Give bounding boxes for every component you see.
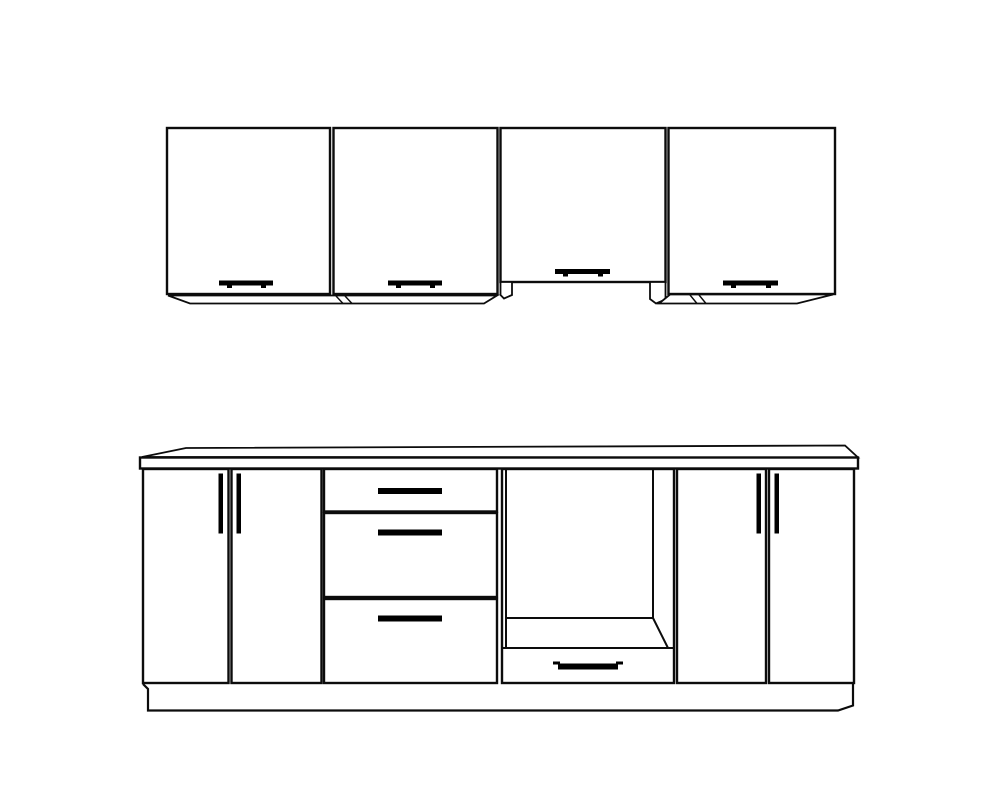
drawer-3 — [324, 599, 497, 683]
base-cabinet-left — [143, 469, 322, 683]
wall-cabinet-1 — [167, 128, 330, 294]
base-cabinet-left-door-2 — [232, 469, 322, 683]
wall-cabinet-3 — [501, 128, 666, 304]
wall-cabinet-2-handle-foot-right — [430, 286, 435, 289]
oven-housing — [502, 469, 674, 683]
wall-cabinet-1-handle-foot-left — [227, 286, 232, 289]
plinth-kickboard — [143, 684, 853, 711]
base-cabinet-left-handle-2 — [237, 474, 242, 534]
wall-cabinet-2-handle-foot-left — [396, 286, 401, 289]
wall-cabinet-underside-right — [659, 295, 833, 304]
wall-cabinet-3-handle-foot-left — [563, 274, 568, 277]
wall-cabinet-3-recess-foot-left — [501, 282, 513, 299]
drawer-2-handle — [378, 530, 442, 536]
base-cabinet-right — [677, 469, 854, 683]
wall-cabinet-4-handle-foot-left — [731, 286, 736, 289]
base-row — [140, 446, 858, 711]
drawer-unit — [324, 469, 497, 683]
wall-cabinet-4 — [669, 128, 836, 294]
countertop — [140, 446, 858, 469]
drawer-1-handle — [378, 488, 442, 494]
oven-cavity-depth-lines — [506, 618, 668, 648]
wall-cabinet-4-handle-foot-right — [766, 286, 771, 289]
wall-cabinet-underside-left — [168, 296, 497, 304]
oven-drawer-handle — [558, 664, 618, 670]
drawer-3-handle — [378, 616, 442, 622]
wall-cabinet-2 — [334, 128, 498, 294]
oven-cavity-opening — [506, 469, 653, 618]
countertop-front-edge — [140, 458, 858, 469]
wall-cabinet-3-handle — [555, 269, 610, 274]
wall-cabinet-3-handle-foot-right — [598, 274, 603, 277]
drawer-2 — [324, 513, 497, 597]
base-cabinet-right-handle-2 — [775, 474, 780, 534]
wall-cabinet-1-door — [167, 128, 330, 294]
wall-cabinet-4-door — [669, 128, 836, 294]
base-cabinet-right-handle-1 — [757, 474, 762, 534]
oven-drawer-handle-end-left — [553, 662, 560, 665]
wall-cabinet-3-door — [501, 128, 666, 282]
base-cabinet-left-handle-1 — [219, 474, 224, 534]
base-cabinet-left-door-1 — [143, 469, 229, 683]
wall-cabinet-1-handle-foot-right — [261, 286, 266, 289]
wall-cabinet-1-handle — [219, 281, 273, 286]
kitchen-elevation-page — [0, 0, 1000, 800]
oven-drawer-handle-end-right — [616, 662, 623, 665]
base-cabinet-right-door-1 — [677, 469, 766, 683]
oven-housing-carcass — [502, 469, 674, 683]
wall-cabinet-2-handle — [388, 281, 442, 286]
kitchen-elevation-drawing — [0, 0, 1000, 800]
base-cabinet-right-door-2 — [769, 469, 854, 683]
wall-cabinet-2-door — [334, 128, 498, 294]
countertop-top-surface — [142, 446, 858, 458]
wall-cabinet-4-handle — [723, 281, 778, 286]
wall-cabinet-row — [167, 128, 835, 304]
